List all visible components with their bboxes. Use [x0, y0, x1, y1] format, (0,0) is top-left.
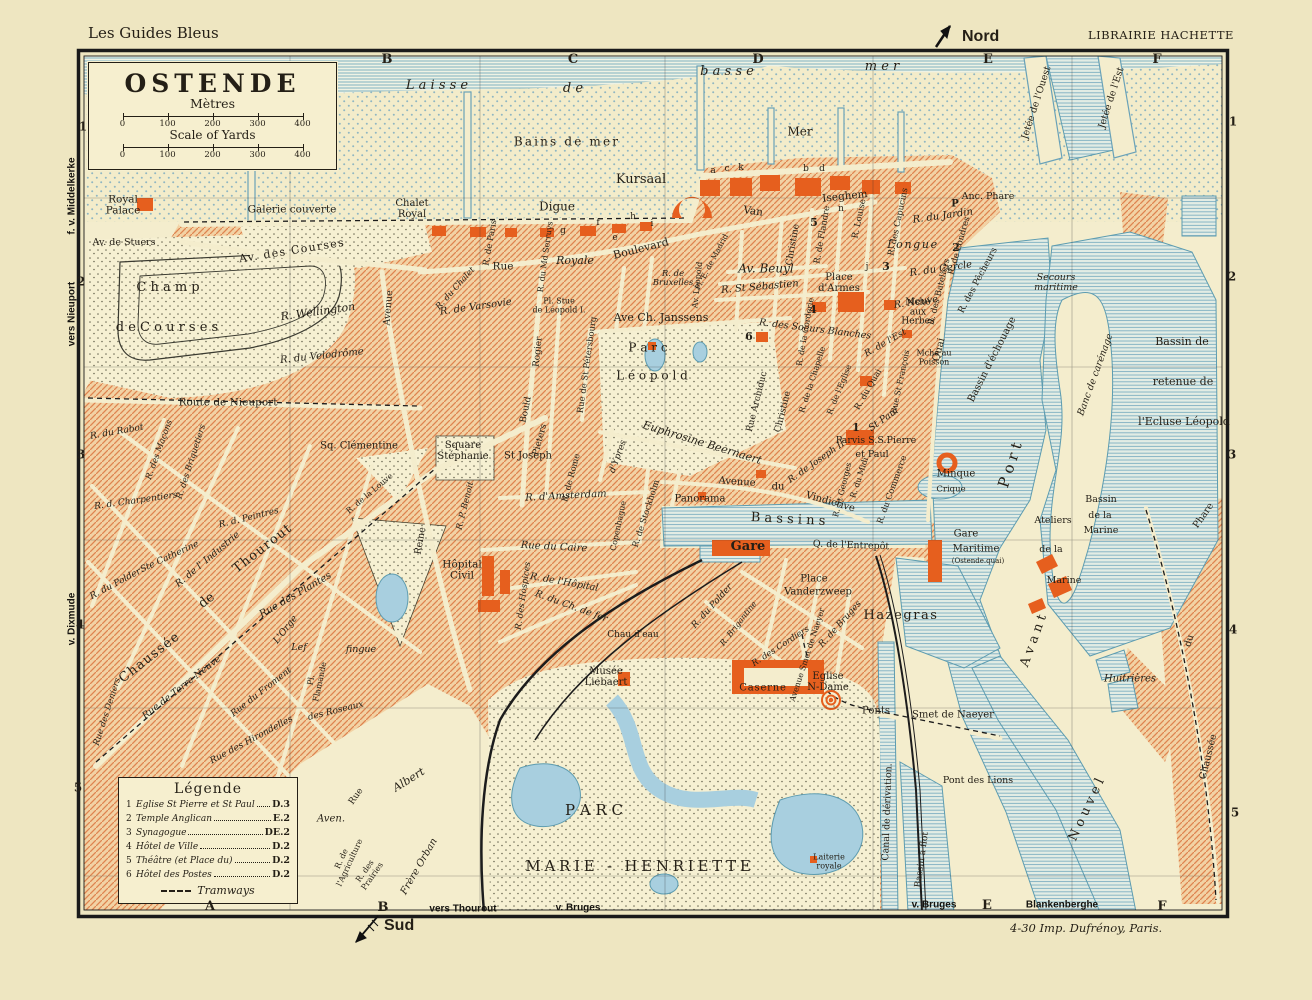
map-label: Rue Archiduc — [746, 371, 770, 433]
map-label: Musée Liebaert — [585, 667, 628, 689]
map-label: Pieters — [532, 423, 550, 457]
map-label: 1 — [79, 121, 87, 134]
map-label: P — [951, 200, 959, 211]
map-label: Crique — [936, 485, 965, 494]
map-label: E — [983, 53, 993, 67]
map-label: 2 — [952, 242, 960, 254]
map-label: vers Thourout — [429, 905, 496, 916]
map-label: retenue de — [1153, 376, 1213, 388]
map-label: a — [710, 167, 715, 177]
map-label: R. des Maçons — [145, 419, 175, 481]
map-label: B a s s i n s — [750, 511, 825, 529]
map-label: Panorama — [675, 495, 726, 506]
map-label: R. d. Peintres — [218, 507, 280, 531]
map-label: Hazegras — [863, 609, 938, 623]
map-label: Secours maritime — [1034, 273, 1078, 294]
map-label: Lef — [291, 643, 306, 653]
map-label: R. du Midi — [849, 457, 870, 500]
map-label: C — [568, 53, 578, 67]
map-label: Mché au Poisson — [916, 349, 951, 366]
map-label: Av. des Courses — [238, 237, 346, 265]
map-label: i — [651, 220, 654, 230]
map-label: R. du Polder — [691, 583, 736, 631]
map-label: R. de Bruges — [818, 600, 865, 650]
map-label: Smet de Naeyer — [912, 711, 994, 722]
map-label: R. de la Chapelle — [798, 346, 828, 414]
map-label: R. du Jardin — [912, 207, 974, 226]
map-label: B — [382, 53, 393, 67]
map-label: Av. Beuyl — [738, 263, 793, 276]
map-label: B — [378, 901, 389, 915]
map-label: du — [1183, 634, 1197, 649]
map-label: Albert — [391, 766, 427, 794]
map-label: Pl. Stue de Léopold I. — [532, 297, 585, 314]
map-label: Av. de Stuers — [93, 238, 156, 248]
map-label: Vindictive — [804, 491, 856, 515]
map-label: R. des Capucins — [887, 187, 910, 257]
map-label: 5 — [1231, 807, 1239, 820]
map-label: 3 — [77, 449, 85, 462]
map-label: Hôpital Civil — [442, 560, 481, 583]
map-label: Christine — [774, 390, 794, 433]
map-label: Mer — [787, 126, 812, 139]
map-label: Rue du Caire — [520, 541, 587, 555]
map-label: Pl. E. de Madrid — [694, 233, 730, 291]
map-label: Chaussée — [117, 630, 184, 686]
map-label: R. de l'Est — [863, 328, 908, 360]
map-label: 2 — [1228, 271, 1236, 284]
map-label: Marine — [1084, 526, 1119, 536]
map-label: R. de Varsovie — [439, 298, 512, 319]
map-label: v. Dixmude — [68, 593, 79, 646]
map-label: 6 — [745, 331, 753, 343]
map-label: Ave Ch. Janssens — [614, 312, 709, 324]
map-label: Place d'Armes — [818, 273, 860, 295]
map-label: 5 — [810, 217, 818, 229]
map-label: d'Ypres — [609, 439, 630, 474]
map-label: Rue de Terre Neuve — [141, 654, 223, 722]
map-label: de la — [1039, 545, 1062, 555]
map-label: d e — [563, 82, 583, 96]
map-label: P a r c — [628, 342, 667, 355]
map-label: f. v. Middelkerke — [68, 157, 79, 234]
map-label: Longue — [887, 239, 939, 251]
map-label: 3 — [1228, 449, 1236, 462]
map-label: R. de Stockholm — [632, 479, 663, 549]
map-label: R. Neuve — [893, 295, 938, 311]
map-label: Vanderzweep — [784, 588, 852, 599]
map-label: de la — [1088, 511, 1111, 521]
map-label: Chalet Royal — [395, 199, 428, 221]
map-label: Jetée de l'Ouest — [1020, 65, 1053, 141]
map-label: Jetée de l'Est — [1097, 66, 1126, 130]
map-label: 5 — [74, 782, 82, 795]
map-label: St Joseph — [504, 452, 552, 463]
map-label: F — [1157, 900, 1166, 914]
map-label: R. du Ch. de fer — [533, 589, 608, 625]
map-label: n — [838, 205, 844, 215]
map-label: R. du Md Serruys — [537, 221, 555, 293]
map-label: Q. de l'Entrepôt — [813, 540, 890, 553]
map-label: C h a m p — [136, 281, 199, 295]
map-label: Kursaal — [616, 173, 666, 187]
map-label: Sq. Clémentine — [320, 442, 398, 453]
map-label: Copenhague — [609, 500, 628, 552]
map-label: R. d'Amsterdam — [525, 489, 607, 504]
map-label: Chau d'eau — [607, 631, 658, 641]
map-label: D — [752, 53, 763, 67]
map-label: R. de Joseph II — [787, 440, 847, 486]
map-label: Pl. Flamande — [303, 660, 328, 703]
map-label: Eglise N-Dame — [807, 672, 849, 694]
map-label: du — [772, 483, 785, 494]
map-label: 1 — [852, 422, 860, 434]
map-label: k — [738, 164, 743, 174]
map-label: R. de la Louve — [345, 472, 395, 516]
map-label: R. de Bruxelles — [653, 270, 693, 288]
map-label-layer: L a i s s ed eb a s s em e rBains de mer… — [0, 0, 1312, 1000]
map-label: R. de l' Industrie — [174, 530, 242, 590]
map-label: Bassin d'échouage — [967, 316, 1019, 405]
map-label: Ateliers — [1034, 516, 1071, 526]
map-label: e — [612, 234, 617, 244]
map-label: R. de Flandre — [813, 205, 832, 264]
map-page: Les Guides Bleus Nord LIBRAIRIE HACHETTE… — [0, 0, 1312, 1000]
map-label: Pont des Lions — [943, 776, 1013, 786]
map-label: d e C o u r s e s — [116, 321, 218, 335]
map-label: Laiterie royale — [813, 853, 845, 870]
map-label: Caserne — [739, 684, 786, 695]
map-label: R. du Quai — [854, 368, 885, 412]
map-label: Euphrosine Beernaert — [641, 419, 763, 466]
map-label: R. St Georges — [832, 462, 854, 518]
map-label: Ste Catherine — [139, 540, 200, 576]
map-label: Reine — [414, 527, 429, 556]
map-label: F — [1152, 53, 1161, 67]
map-label: Royale — [556, 255, 594, 267]
map-label: b a s s e — [700, 65, 754, 79]
map-label: Av. Léopold — [691, 261, 704, 308]
map-label: Rue — [493, 261, 514, 272]
map-label: Rue des Hirondelles — [209, 715, 295, 767]
map-label: A — [205, 900, 215, 914]
map-label: Mché aux Herbes — [901, 298, 934, 327]
map-label: R. Wellington — [280, 301, 356, 323]
map-label: Place — [800, 575, 827, 586]
map-label: Route de Nieuport — [179, 397, 278, 408]
map-label: R. du Velodrôme — [280, 347, 365, 367]
map-label: Royal Palace — [106, 195, 141, 218]
map-label: Bassin de — [1155, 336, 1209, 348]
map-label: m e r — [865, 60, 900, 74]
map-label: Rogier — [533, 336, 546, 367]
map-label: Rue — [348, 787, 366, 807]
map-label: l'Ecluse Léopold — [1138, 416, 1230, 428]
map-label: Thourout — [231, 522, 296, 577]
map-label: 4 — [1229, 624, 1237, 637]
map-label: Digue — [539, 201, 575, 214]
map-label: Avenue — [718, 476, 756, 489]
map-label: R. de Rome — [561, 453, 583, 503]
map-label: R. St Sébastien — [721, 279, 799, 297]
map-label: Rue des Plantes — [258, 571, 334, 621]
map-label: R. de l'Hôpital — [529, 572, 599, 594]
map-label: b — [803, 165, 809, 175]
map-label: R. des Hospices — [515, 561, 534, 630]
map-label: Galerie couverte — [248, 204, 337, 215]
map-label: R. du Rabot — [90, 424, 145, 443]
map-label: f — [596, 219, 599, 229]
map-label: Rue du Froment — [230, 666, 295, 719]
map-label: St Paul — [867, 406, 901, 434]
map-label: 4 — [809, 304, 817, 316]
map-label: 4 — [76, 619, 84, 632]
map-label: 3 — [882, 261, 890, 273]
map-label: MARIE - HENRIETTE — [525, 858, 754, 874]
map-label: L é o p o l d — [616, 370, 688, 383]
map-label: des Roseaux — [307, 700, 365, 723]
map-label: R. de la Corderie — [796, 297, 816, 367]
map-label: Rue St François — [890, 349, 912, 414]
map-label: Blankenberghe — [1026, 901, 1098, 912]
map-label: Avenue Smet de Naeyer — [789, 607, 827, 703]
map-label: R. du Chalet — [435, 266, 478, 312]
map-label: Boulevard — [612, 236, 670, 261]
map-label: c — [724, 165, 729, 175]
map-label: R. Brigantine — [719, 600, 759, 648]
map-label: Gare — [954, 530, 979, 541]
map-label: R. des Pêcheurs — [958, 247, 1001, 316]
map-label: Anc. Phare — [962, 192, 1015, 202]
map-label: Minque — [937, 470, 976, 481]
map-label: R. des Cordiers — [751, 625, 812, 669]
map-label: P o r t — [995, 440, 1025, 489]
map-label: E — [982, 899, 992, 913]
map-label: R. de l'Agriculture — [327, 834, 364, 888]
map-label: j — [866, 263, 869, 273]
map-label: Bassin — [1085, 495, 1117, 505]
map-label: A v a n t — [1018, 613, 1050, 669]
map-label: 1 — [1229, 116, 1237, 129]
map-label: R. des Briquetiers — [176, 424, 209, 501]
map-label: R. du Commerce — [876, 455, 909, 526]
map-label: Bould — [519, 396, 534, 424]
map-label: Parvis S.S.Pierre — [836, 436, 917, 446]
map-label: d — [819, 165, 825, 175]
map-label: Rue de St Pétersbourg — [577, 316, 600, 414]
map-label: Huitrières — [1104, 675, 1156, 686]
map-label: Rue des Deniers — [93, 677, 124, 747]
map-label: v. Bruges — [912, 901, 957, 912]
map-label: Maritime — [953, 545, 1000, 556]
map-label: Phare — [1192, 501, 1217, 530]
map-label: N o u v e l — [1066, 776, 1107, 843]
map-label: fingue — [346, 645, 376, 655]
map-label: R. des Prairies — [353, 856, 385, 892]
map-label: R. d. Charpentiers — [94, 491, 179, 512]
map-label: R. du Polder — [89, 567, 143, 602]
map-label: R. P. Benoit — [456, 481, 477, 531]
map-label: Avenue — [382, 290, 395, 326]
map-label: Van — [742, 205, 763, 219]
map-label: Chaussée — [1198, 733, 1219, 780]
map-label: Quai — [932, 337, 949, 363]
map-label: g — [560, 227, 566, 237]
map-label: L a i s s e — [406, 79, 468, 93]
map-label: Bassin à flot — [914, 832, 931, 889]
map-label: 2 — [77, 276, 85, 289]
map-label: P A R C — [565, 802, 623, 818]
map-label: Square Stéphanie — [437, 441, 488, 463]
map-label: R. des Bateliers — [927, 258, 952, 326]
map-label: vers Nieuport — [68, 282, 79, 346]
map-label: R. de l'Eglise — [826, 364, 854, 417]
map-label: et Paul — [855, 450, 888, 460]
map-label: R. Louise — [851, 198, 868, 239]
map-label: Iseghem — [822, 189, 868, 205]
map-label: v. Bruges — [556, 904, 601, 915]
map-label: Gare — [731, 540, 766, 554]
map-label: R. du Cercle — [909, 260, 973, 279]
map-label: Marine — [1047, 576, 1082, 586]
map-label: L'Orge — [272, 614, 300, 646]
map-label: Canal de dérivation. — [881, 763, 895, 861]
map-label: de — [196, 591, 217, 612]
map-label: Frère Orban — [400, 837, 441, 897]
map-label: (Ostende.quai) — [952, 558, 1005, 566]
map-label: R. des Soeurs Blanches — [758, 318, 871, 342]
map-label: Ponts — [862, 707, 890, 718]
map-label: R. de Paris — [482, 219, 499, 266]
map-label: Christine — [786, 223, 803, 266]
map-label: h — [630, 213, 636, 223]
map-label: Bains de mer — [514, 136, 620, 149]
map-label: Aven. — [317, 815, 345, 826]
map-label: Banc de carénage — [1076, 333, 1115, 418]
map-label: R. de Londres — [947, 216, 972, 276]
